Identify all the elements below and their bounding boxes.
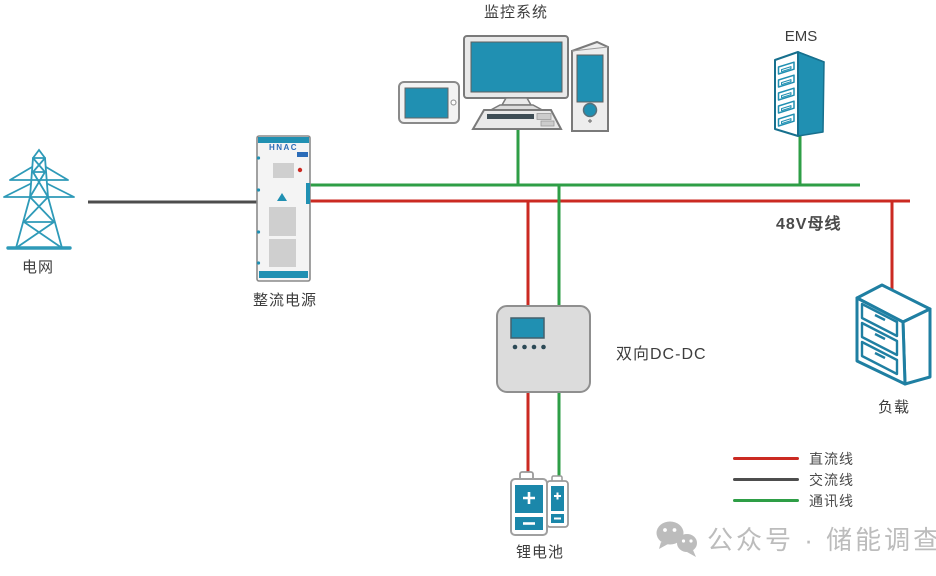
label-monitoring-system: 监控系统 bbox=[456, 1, 576, 22]
watermark: 公众号 · 储能调查 bbox=[651, 516, 936, 560]
pc-tower-icon bbox=[572, 42, 608, 131]
legend: 直流线 交流线 通讯线 bbox=[733, 448, 854, 511]
wechat-icon bbox=[651, 516, 701, 560]
label-battery: 锂电池 bbox=[490, 541, 590, 562]
label-grid: 电网 bbox=[8, 256, 68, 277]
load-cabinet-icon bbox=[857, 285, 930, 384]
label-48v-bus: 48V母线 bbox=[776, 210, 841, 234]
legend-dc-line-swatch bbox=[733, 457, 799, 460]
dcdc-box-icon bbox=[497, 306, 590, 392]
monitor-icon bbox=[464, 36, 568, 112]
wires bbox=[88, 124, 910, 480]
rectifier-brand-logo: HNAC bbox=[257, 143, 310, 152]
label-dcdc: 双向DC-DC bbox=[616, 340, 707, 364]
legend-item-dc: 直流线 bbox=[733, 448, 854, 469]
legend-comm-line-swatch bbox=[733, 499, 799, 502]
label-load: 负载 bbox=[854, 396, 934, 417]
diagram-canvas: 监控系统 EMS 电网 整流电源 双向DC-DC 锂电池 负载 48V母线 HN… bbox=[0, 0, 936, 576]
keyboard-icon bbox=[473, 110, 561, 129]
legend-item-comm: 通讯线 bbox=[733, 490, 854, 511]
legend-dc-line-label: 直流线 bbox=[809, 449, 854, 469]
label-rectifier: 整流电源 bbox=[233, 289, 337, 310]
legend-ac-line-label: 交流线 bbox=[809, 470, 854, 490]
label-ems: EMS bbox=[771, 28, 831, 45]
rectifier-cabinet-icon bbox=[257, 136, 310, 281]
tablet-icon bbox=[399, 82, 459, 123]
legend-ac-line-swatch bbox=[733, 478, 799, 481]
ems-cabinet-icon bbox=[775, 52, 824, 136]
grid-tower-icon bbox=[4, 150, 74, 248]
legend-comm-line-label: 通讯线 bbox=[809, 491, 854, 511]
watermark-text: 公众号 · 储能调查 bbox=[707, 520, 936, 557]
battery-icon bbox=[511, 472, 568, 535]
legend-item-ac: 交流线 bbox=[733, 469, 854, 490]
